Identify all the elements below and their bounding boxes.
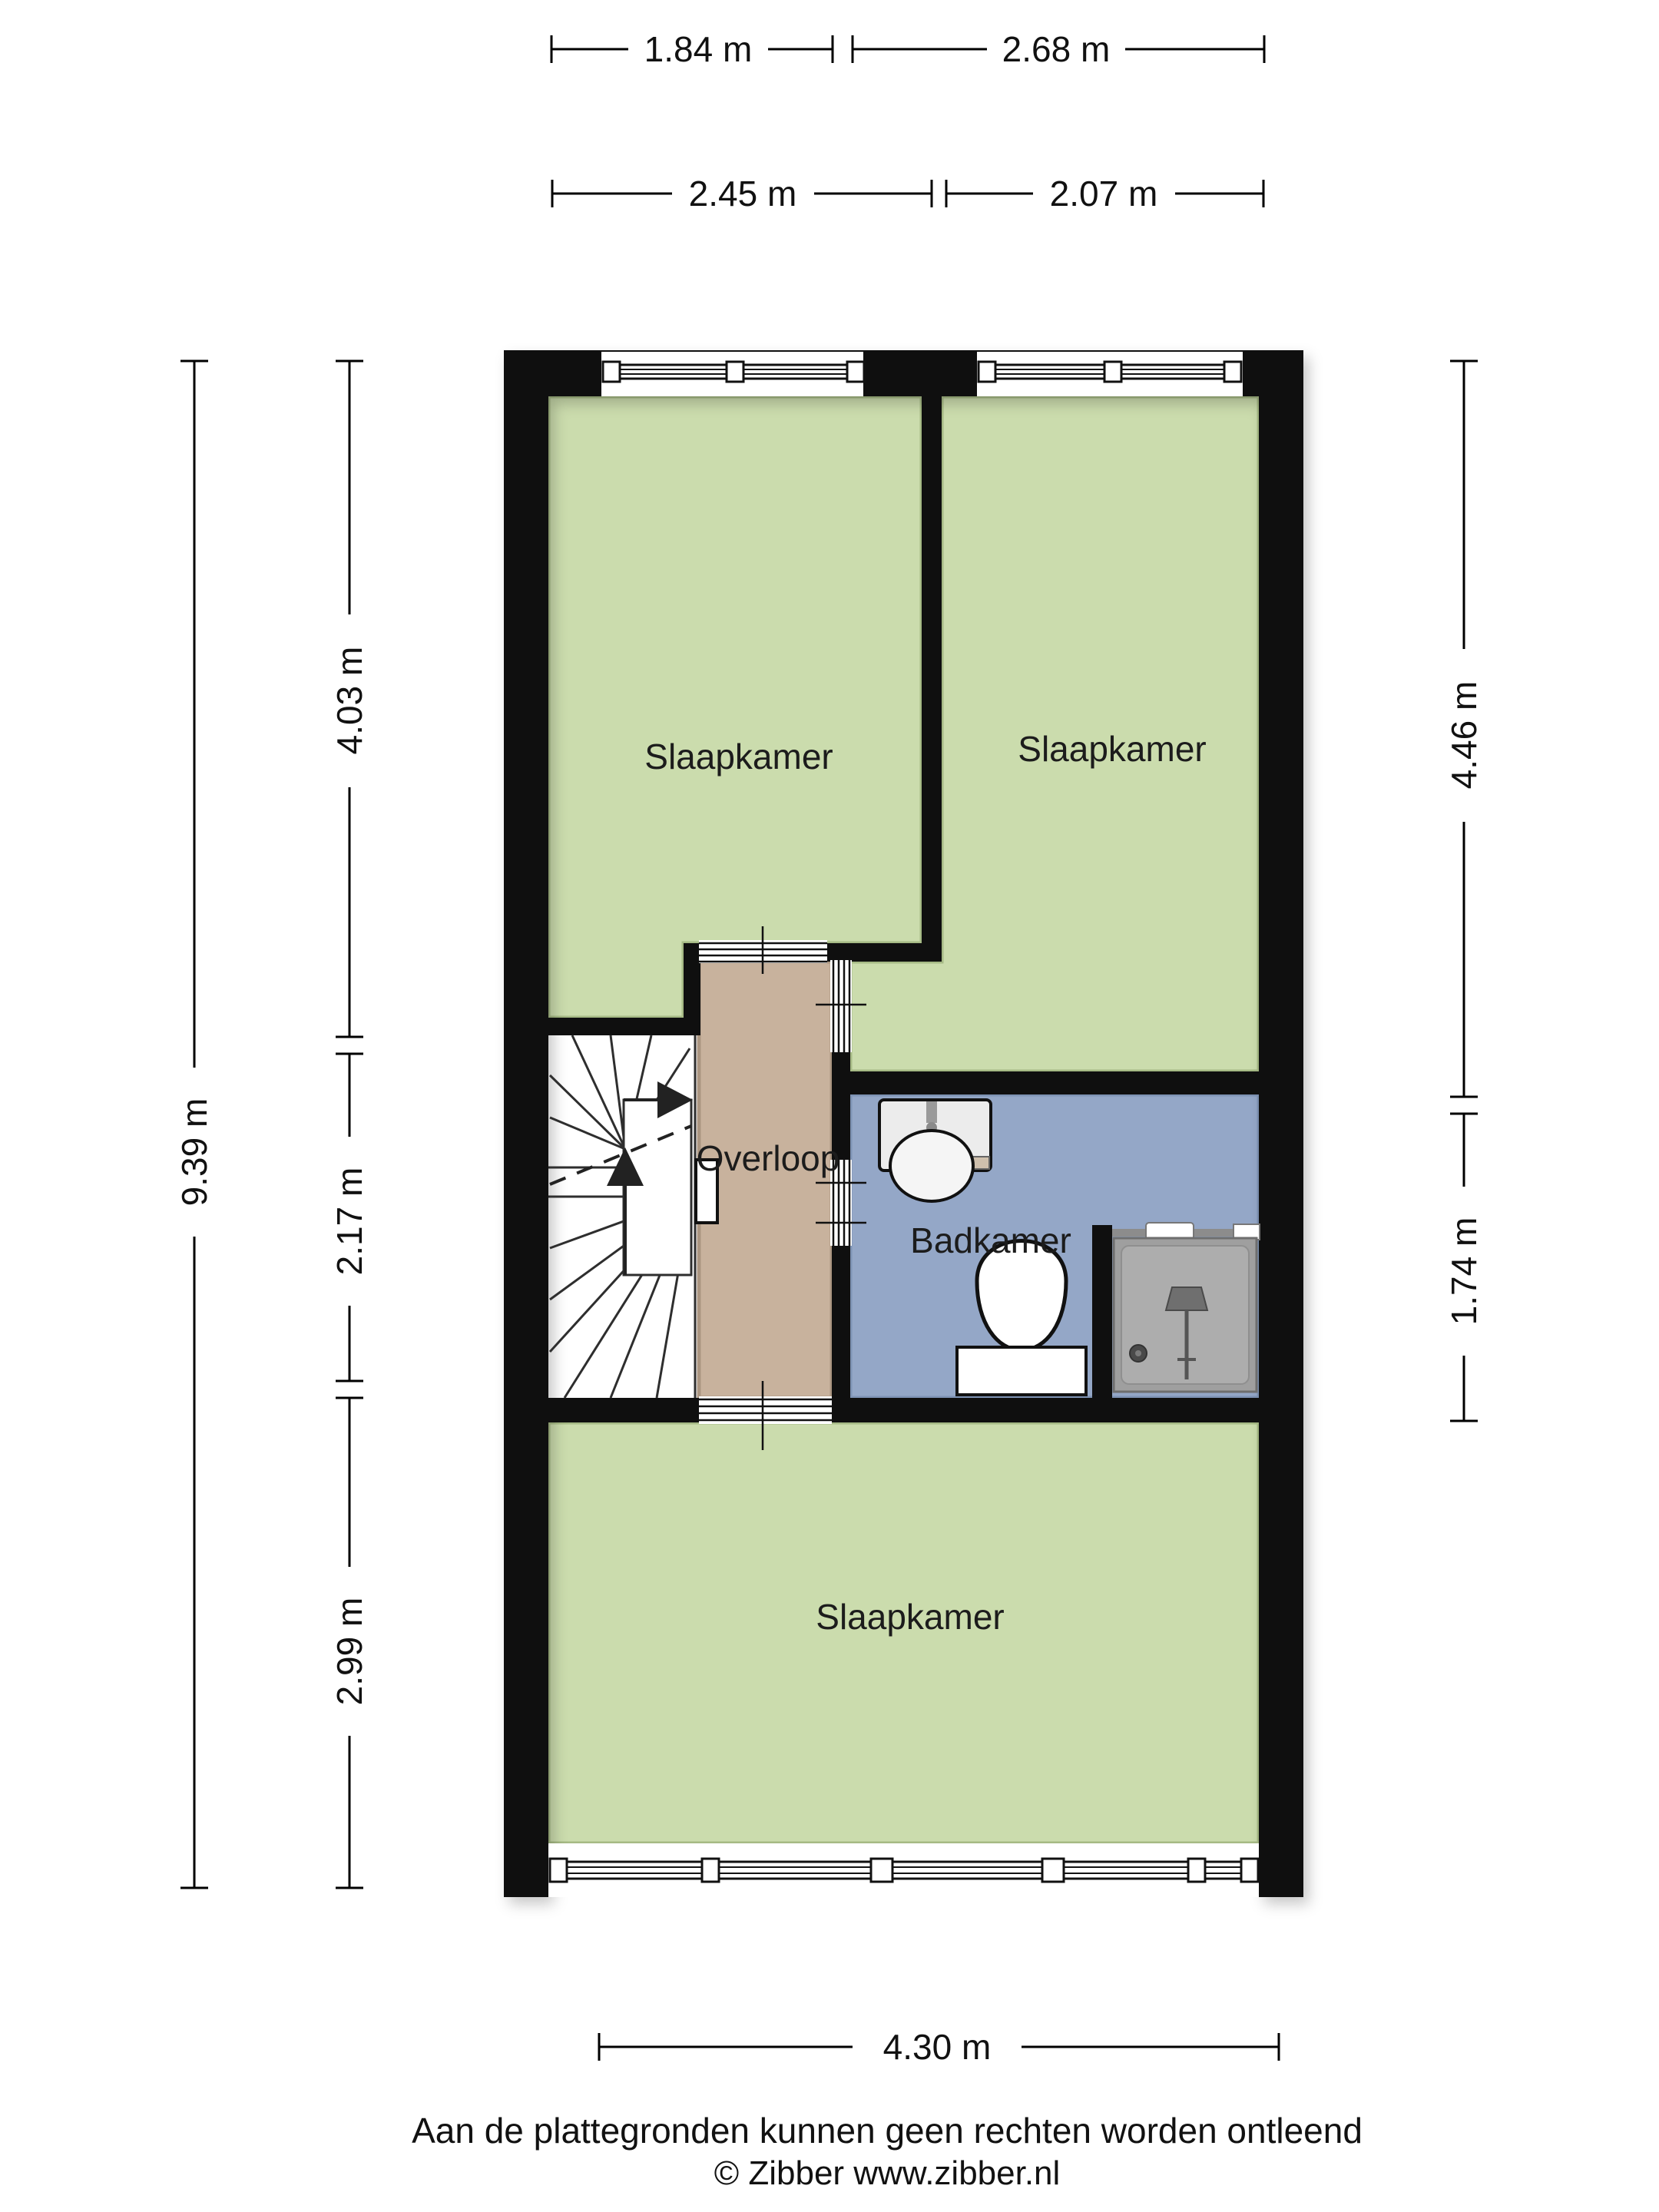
footer-disclaimer: Aan de plattegronden kunnen geen rechten… [412, 2111, 1363, 2151]
dim-label: 1.84 m [644, 29, 753, 69]
dim-top-row2: 2.45 m 2.07 m [552, 174, 1263, 214]
window-icon [977, 352, 1243, 396]
dim-label: 4.30 m [883, 2027, 992, 2067]
wall-left [504, 350, 548, 1897]
window-icon [601, 352, 864, 396]
wall-shower [1092, 1225, 1112, 1398]
floorplan-canvas: Slaapkamer Slaapkamer Overloop Badkamer … [0, 0, 1659, 2212]
dim-label: 4.46 m [1444, 681, 1484, 790]
label-slaapkamer-top-left: Slaapkamer [644, 737, 833, 777]
label-badkamer: Badkamer [910, 1220, 1071, 1260]
wall-bottom-left-pier [504, 1843, 548, 1897]
label-slaapkamer-bottom: Slaapkamer [816, 1597, 1004, 1637]
dim-label: 9.39 m [174, 1098, 214, 1207]
shower-icon [1112, 1223, 1260, 1392]
dim-label: 1.74 m [1444, 1217, 1484, 1326]
dim-bottom: 4.30 m [599, 2027, 1279, 2067]
dim-label: 2.68 m [1002, 29, 1111, 69]
wall-badkamer-top [832, 1071, 1259, 1094]
dim-label: 2.99 m [329, 1598, 369, 1706]
dim-label: 2.17 m [329, 1167, 369, 1276]
footer: Aan de plattegronden kunnen geen rechten… [412, 2111, 1363, 2192]
label-slaapkamer-top-right: Slaapkamer [1018, 729, 1206, 769]
wall-bottom-right-pier [1259, 1843, 1303, 1897]
dim-label: 2.07 m [1050, 174, 1158, 214]
dim-left-segments: 4.03 m 2.17 m 2.99 m [329, 361, 369, 1888]
wall-bedroom-divider [922, 350, 942, 962]
dim-left-total: 9.39 m [174, 361, 214, 1888]
footer-copyright: © Zibber www.zibber.nl [714, 2154, 1061, 2192]
wall-right [1259, 350, 1303, 1897]
window-icon [548, 1843, 1259, 1897]
wall-bedroom1-bottom [548, 1018, 700, 1035]
label-overloop: Overloop [697, 1138, 840, 1178]
wall-bottom-middle [548, 1398, 1259, 1422]
dim-top-row1: 1.84 m 2.68 m [551, 29, 1264, 69]
dim-label: 4.03 m [329, 647, 369, 755]
dim-right-segments: 4.46 m 1.74 m [1444, 361, 1484, 1421]
room-slaapkamer-top-left [548, 396, 922, 1018]
floorplan-page: Slaapkamer Slaapkamer Overloop Badkamer … [0, 0, 1659, 2212]
dim-label: 2.45 m [689, 174, 797, 214]
